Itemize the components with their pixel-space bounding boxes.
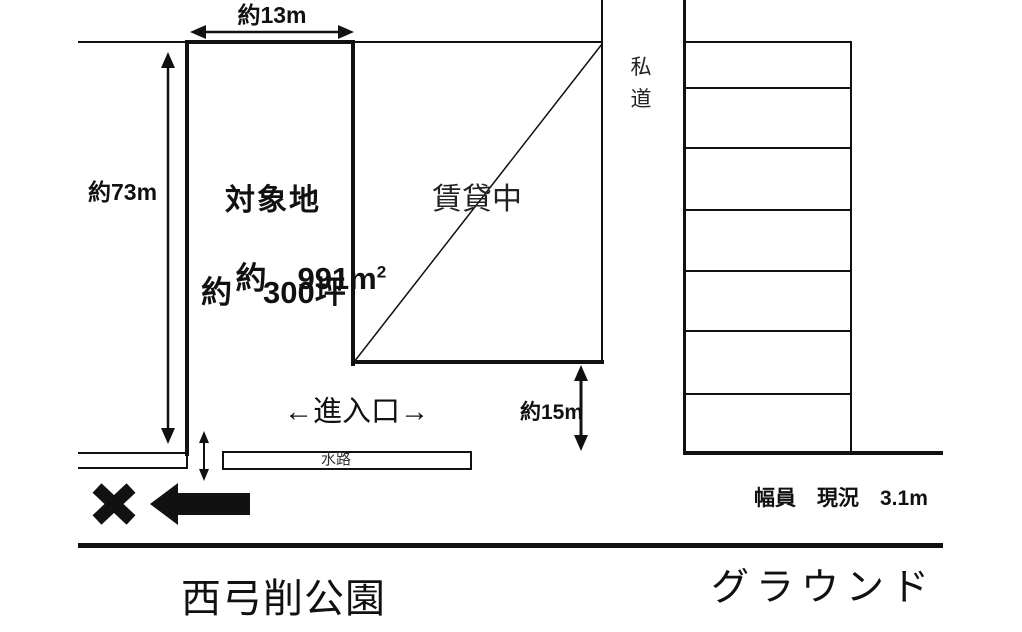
left-road-top-line	[78, 452, 188, 454]
ladder-rung-1	[686, 87, 851, 89]
x-mark-icon	[90, 482, 138, 526]
ladder-rung-4	[686, 270, 851, 272]
ladder-rung-3	[686, 209, 851, 211]
dimension-label-right-height: 約15m	[520, 401, 583, 424]
private-road-label: 私 道	[628, 56, 654, 111]
ladder-rung-5	[686, 330, 851, 332]
height-73m-arrow	[157, 50, 179, 446]
land-plot-diagram: 約13m 約73m 対象地 約 991m2 約 300坪 賃貸中 私 道 ←進入…	[0, 0, 1022, 632]
dimension-label-left-height: 約73m	[88, 180, 157, 205]
plot-tsubo-label: 約 300坪	[201, 276, 346, 310]
ladder-rung-2	[686, 147, 851, 149]
private-road-right-line	[683, 0, 686, 455]
left-road-bottom-line	[78, 467, 188, 469]
plot-area-superscript: 2	[377, 263, 386, 282]
private-road-char-2: 道	[631, 88, 652, 111]
ladder-bottom-line	[683, 451, 943, 455]
waterway-label: 水路	[321, 452, 351, 469]
private-road-char-1: 私	[631, 56, 652, 79]
left-road-end-cap	[186, 452, 188, 469]
road-width-label: 幅員 現況 3.1m	[754, 487, 928, 510]
ladder-right-line	[850, 41, 852, 453]
left-direction-arrow-icon	[148, 481, 252, 527]
ground-name-label: グラウンド	[711, 568, 936, 610]
entrance-gap-arrow	[196, 430, 212, 482]
ladder-top-line	[686, 41, 852, 43]
ladder-rung-6	[686, 393, 851, 395]
rented-status-label: 賃貸中	[432, 183, 522, 216]
entrance-label: ←進入口→	[284, 397, 429, 429]
dimension-label-top-width: 約13m	[188, 3, 356, 28]
plot-border-left	[185, 40, 189, 456]
south-boundary-line	[78, 543, 943, 548]
park-name-label: 西弓削公園	[181, 577, 386, 621]
plot-name-label: 対象地	[225, 184, 321, 217]
